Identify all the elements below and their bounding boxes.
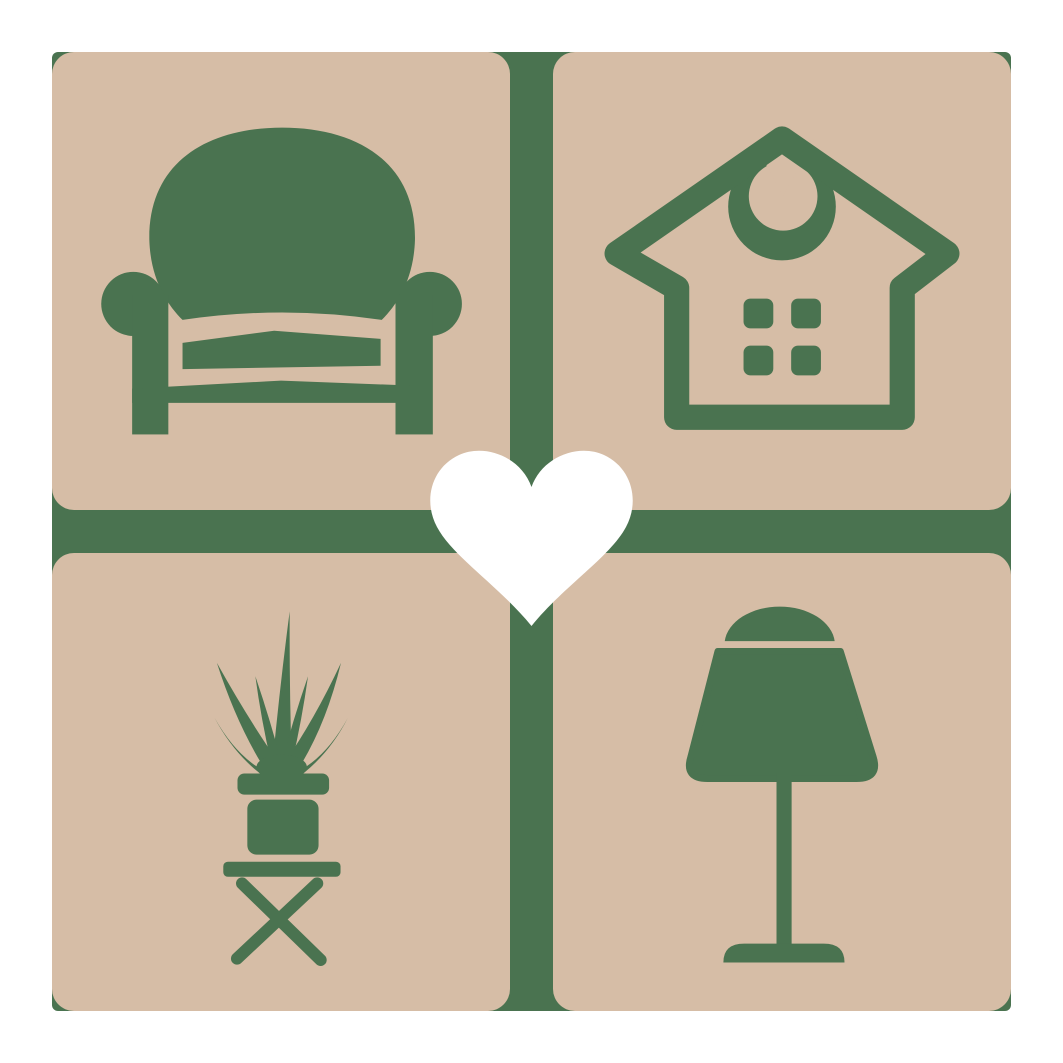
heart-shape <box>430 451 632 626</box>
house-window-pane <box>744 299 774 329</box>
tile-top-right <box>553 52 1011 510</box>
lamp-shade <box>689 651 874 778</box>
lamp-stem <box>777 773 792 947</box>
heart-icon <box>422 443 641 627</box>
house-window-pane <box>791 299 821 329</box>
logo-canvas <box>0 0 1063 1063</box>
tile-top-left <box>52 52 510 510</box>
stool-crossed-legs <box>237 883 321 959</box>
armchair-front-rail <box>132 381 432 403</box>
armchair-leg-left <box>132 295 168 435</box>
armchair-icon <box>52 52 510 510</box>
armchair-back <box>149 128 415 320</box>
lamp-cap <box>725 607 835 642</box>
house-window-pane <box>791 346 821 376</box>
house-icon <box>553 52 1011 510</box>
stool-top <box>223 862 340 877</box>
armchair-leg-right <box>396 295 433 435</box>
plant-pot-body <box>247 800 318 855</box>
house-window-pane <box>744 346 774 376</box>
plant-pot-rim <box>237 774 329 795</box>
lamp-base <box>723 944 844 963</box>
armchair-seat-cushion <box>183 331 381 369</box>
